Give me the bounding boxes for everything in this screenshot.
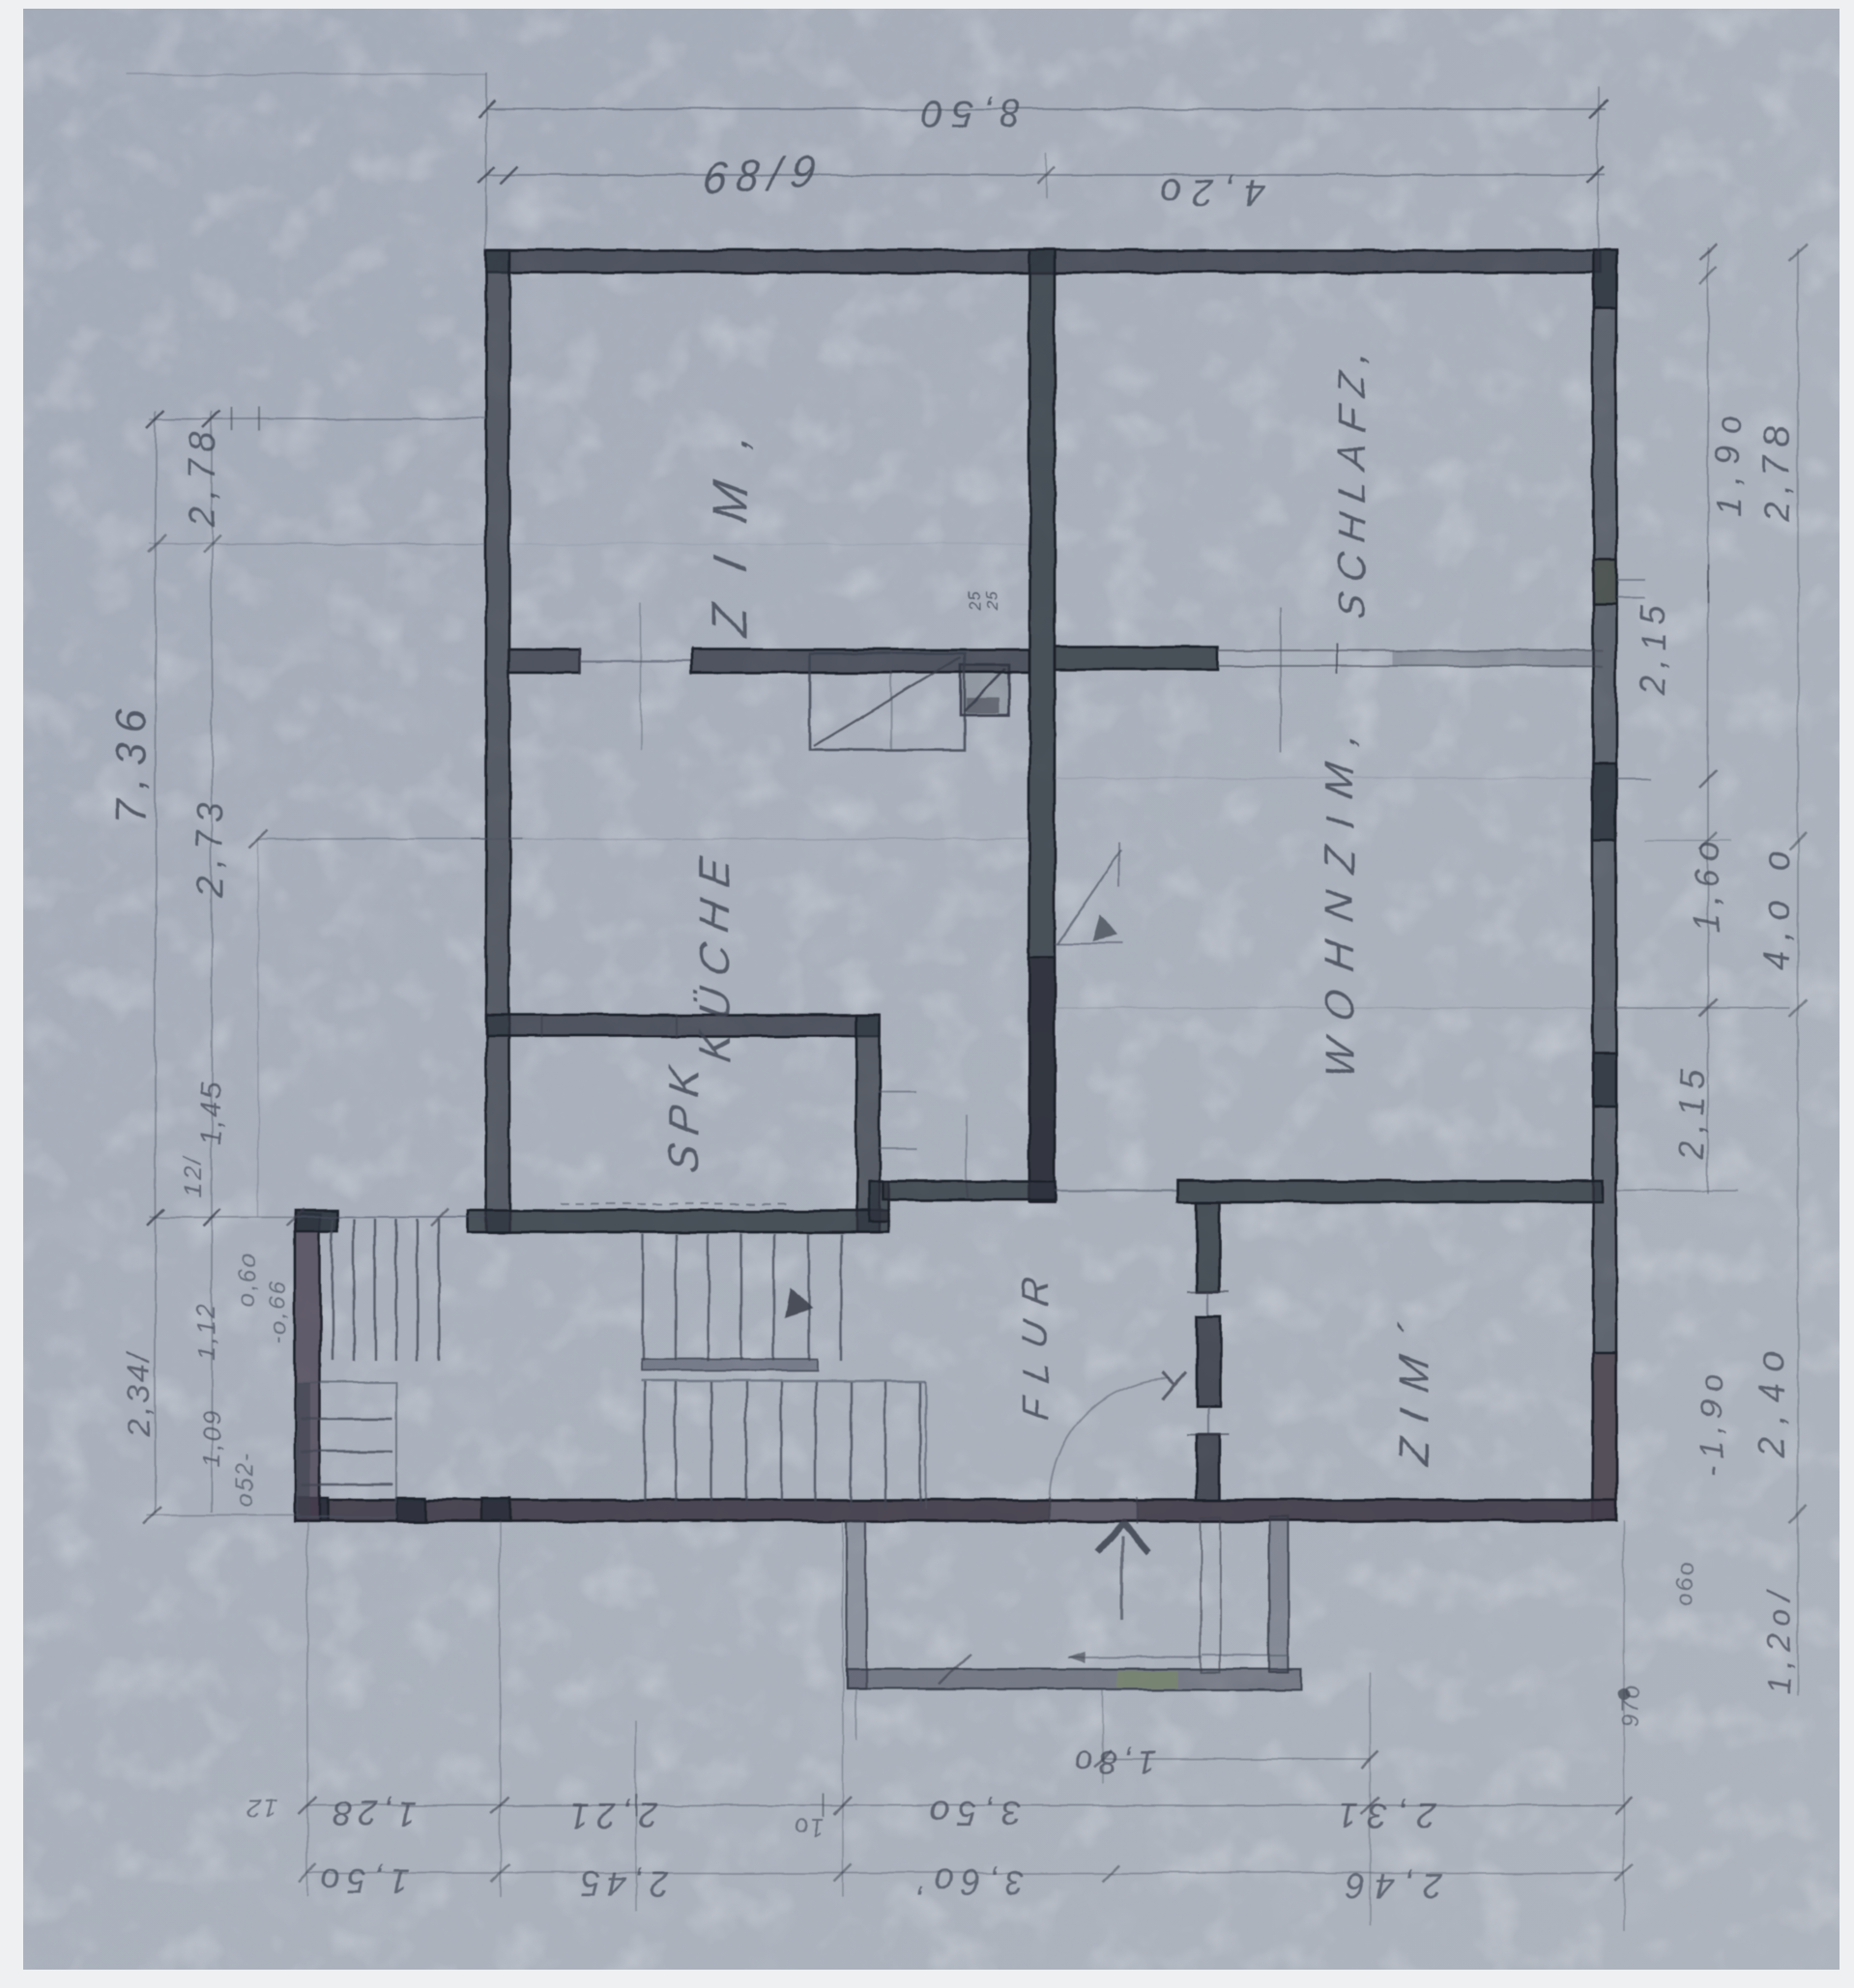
svg-text:2,45: 2,45 [574, 1864, 670, 1904]
svg-text:-1,9o: -1,9o [1694, 1369, 1730, 1478]
svg-text:25: 25 [983, 591, 1001, 612]
svg-text:2,34/: 2,34/ [121, 1349, 158, 1438]
svg-text:o6o: o6o [1672, 1560, 1699, 1606]
svg-text:1o: 1o [792, 1813, 824, 1842]
svg-text:SCHLAFZ,: SCHLAFZ, [1330, 334, 1374, 621]
svg-text:12: 12 [246, 1794, 277, 1823]
svg-text:1,28: 1,28 [327, 1794, 418, 1833]
svg-text:1,12: 1,12 [191, 1302, 220, 1361]
svg-text:4,2o: 4,2o [1148, 171, 1266, 214]
svg-text:8,50: 8,50 [914, 92, 1021, 134]
svg-text:2,78: 2,78 [1757, 419, 1798, 523]
svg-text:12/: 12/ [178, 1155, 207, 1196]
svg-text:2,15: 2,15 [1672, 1061, 1712, 1161]
svg-text:3,5o: 3,5o [922, 1794, 1021, 1833]
svg-text:2,46: 2,46 [1336, 1866, 1443, 1906]
svg-text:2,73: 2,73 [190, 794, 231, 898]
svg-text:7,36: 7,36 [107, 698, 155, 823]
svg-text:3,6o’: 3,6o’ [911, 1862, 1025, 1902]
svg-text:o52-: o52- [232, 1452, 259, 1508]
svg-text:25: 25 [966, 591, 984, 612]
svg-text:2,4o: 2,4o [1752, 1340, 1792, 1458]
svg-text:1,9o: 1,9o [1708, 403, 1748, 517]
svg-text:WOHNZIM,: WOHNZIM, [1317, 709, 1362, 1081]
svg-text:FLUR: FLUR [1015, 1259, 1057, 1425]
svg-text:2,31: 2,31 [1329, 1796, 1436, 1835]
svg-text:1,8o: 1,8o [1069, 1743, 1156, 1780]
svg-text:2,21: 2,21 [563, 1796, 658, 1835]
svg-text:2,15: 2,15 [1633, 597, 1672, 697]
svg-text:2,78: 2,78 [183, 424, 223, 528]
svg-text:SPK: SPK [660, 1053, 708, 1176]
svg-text:1,6o: 1,6o [1687, 834, 1726, 933]
svg-text:1,2o/: 1,2o/ [1761, 1583, 1798, 1695]
svg-text:4,o o: 4,o o [1757, 841, 1798, 971]
svg-text:1,09: 1,09 [197, 1408, 226, 1467]
svg-text:68/9: 68/9 [701, 147, 826, 203]
svg-text:1,45: 1,45 [195, 1081, 227, 1145]
svg-text:o,6o: o,6o [234, 1252, 261, 1307]
svg-text:ZIM,: ZIM, [702, 394, 757, 641]
svg-text:1,5o: 1,5o [314, 1861, 409, 1901]
svg-text:-o,66: -o,66 [265, 1281, 291, 1343]
svg-text:ZIM´: ZIM´ [1391, 1304, 1438, 1470]
svg-text:KÜCHE: KÜCHE [691, 840, 739, 1065]
